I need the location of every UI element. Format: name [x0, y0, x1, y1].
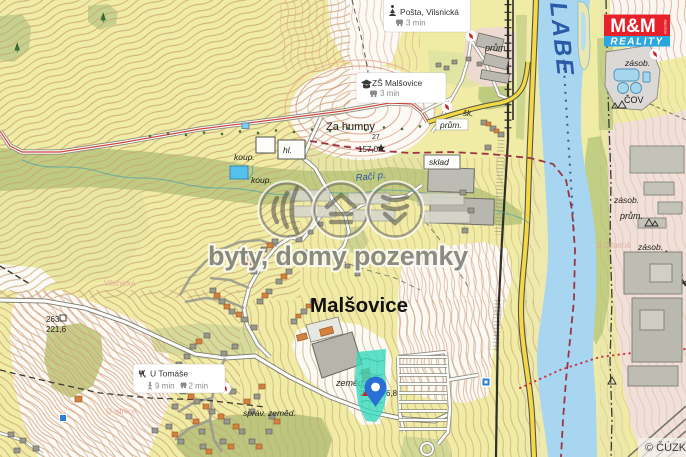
svg-text:Za humny: Za humny	[326, 121, 375, 133]
svg-text:M&M: M&M	[610, 16, 655, 37]
svg-text:© ČÚZK: © ČÚZK	[645, 441, 686, 454]
svg-text:6,8: 6,8	[386, 389, 398, 398]
svg-text:27: 27	[372, 134, 380, 141]
svg-text:ZŠ Malšovice: ZŠ Malšovice	[372, 78, 423, 88]
svg-text:správ.: správ.	[243, 408, 266, 418]
svg-text:sklad: sklad	[429, 157, 449, 167]
svg-text:šk.: šk.	[463, 109, 473, 118]
svg-text:prům.: prům.	[619, 211, 643, 221]
svg-text:221,6: 221,6	[46, 325, 67, 334]
svg-text:U silnice: U silnice	[106, 407, 137, 416]
svg-text:Pošta, Vilsnická: Pošta, Vilsnická	[400, 7, 459, 17]
svg-text:Vilsnická: Vilsnická	[104, 279, 136, 288]
svg-text:U Tomáše: U Tomáše	[150, 369, 188, 379]
svg-text:zásob.: zásob.	[613, 195, 639, 205]
svg-text:zásob.: zásob.	[624, 58, 650, 68]
svg-text:koup.: koup.	[234, 152, 255, 162]
svg-text:9 min: 9 min	[155, 382, 175, 391]
svg-text:ČOV: ČOV	[624, 95, 644, 105]
svg-text:HOLDING: HOLDING	[664, 19, 668, 34]
svg-text:S Cihelně: S Cihelně	[596, 241, 631, 250]
svg-text:3 min: 3 min	[380, 89, 400, 98]
svg-text:prům.: prům.	[484, 43, 508, 53]
svg-text:zeměd.: zeměd.	[267, 408, 296, 418]
svg-text:3 min: 3 min	[406, 19, 426, 28]
svg-text:Malšovice: Malšovice	[310, 294, 408, 317]
svg-text:hl.: hl.	[283, 145, 292, 155]
svg-text:157,0: 157,0	[358, 145, 379, 154]
svg-text:zásob.: zásob.	[637, 242, 663, 252]
svg-text:REALITY: REALITY	[610, 37, 663, 48]
svg-text:263: 263	[46, 315, 60, 324]
svg-text:koup.: koup.	[251, 175, 272, 185]
svg-text:2 min: 2 min	[189, 382, 209, 391]
svg-text:byty, domy pozemky: byty, domy pozemky	[208, 241, 468, 271]
svg-text:prům.: prům.	[439, 120, 462, 130]
